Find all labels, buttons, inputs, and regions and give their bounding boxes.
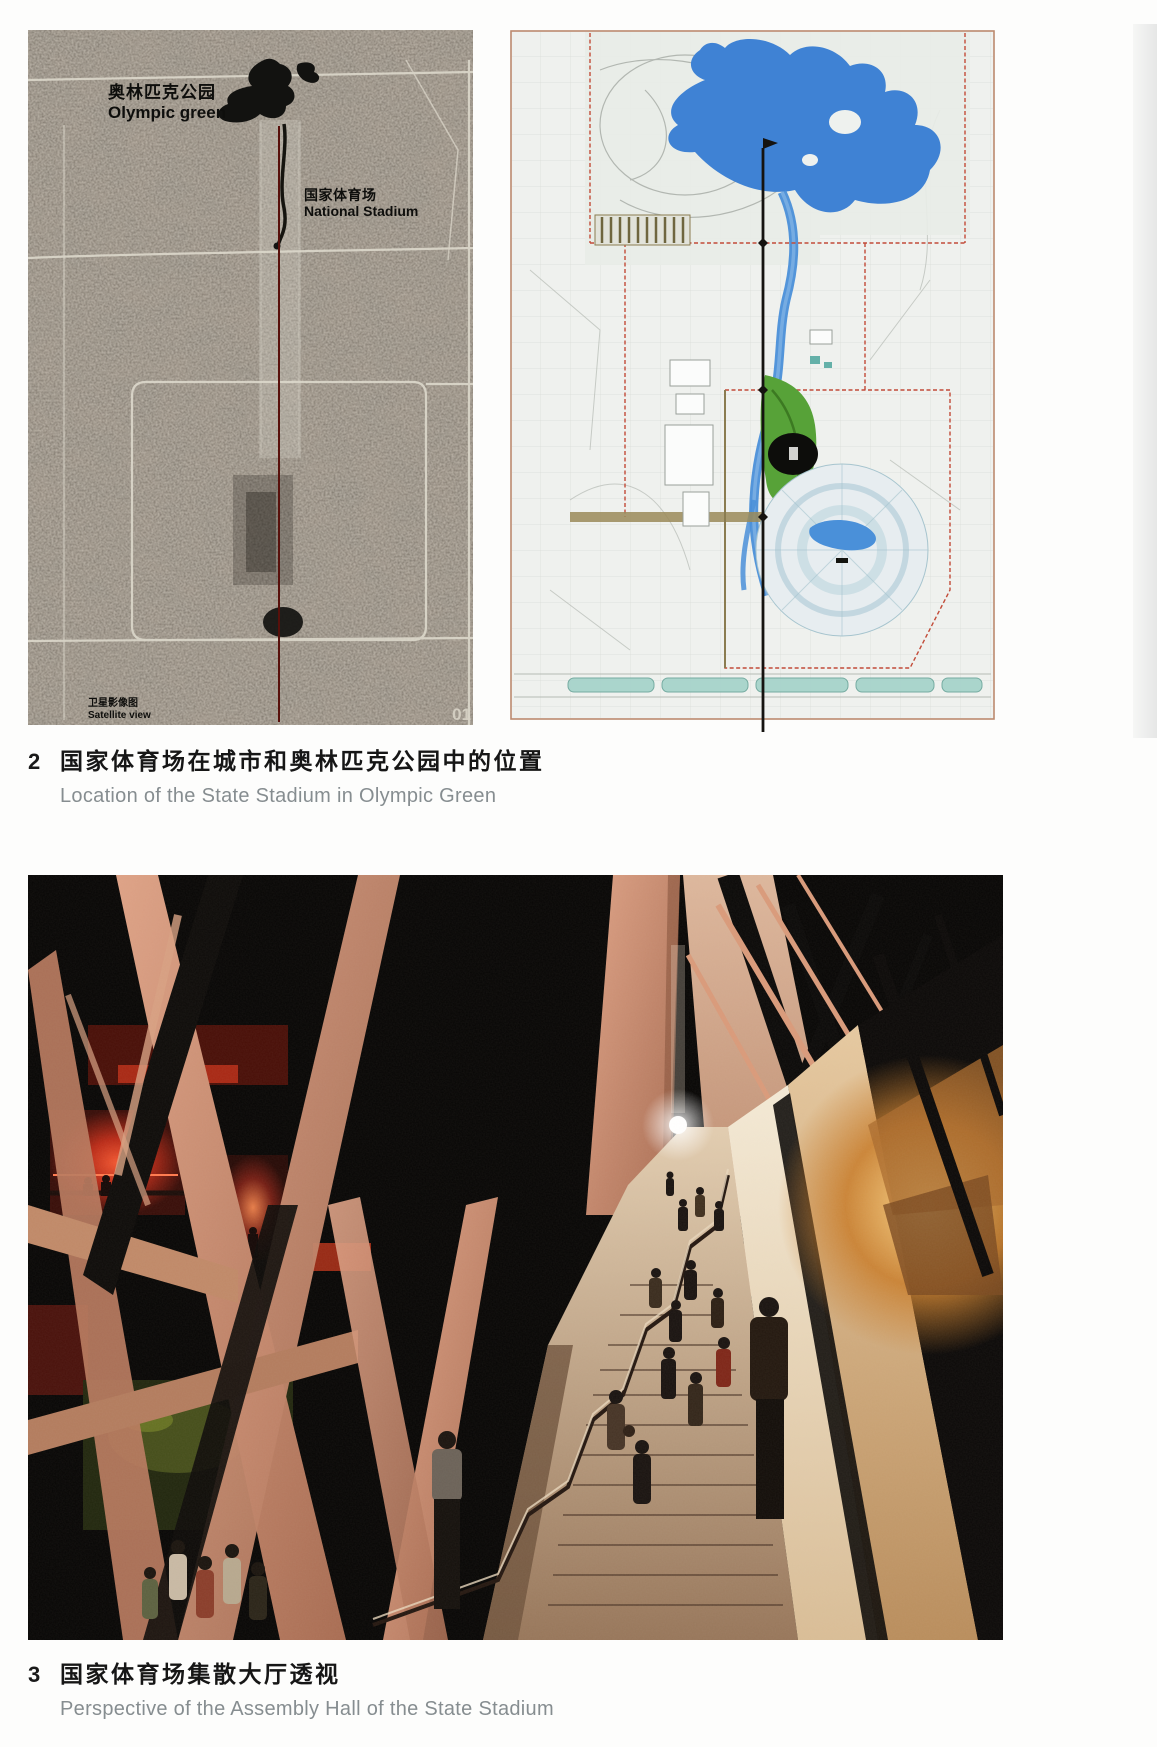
assembly-hall-rendering (28, 875, 1003, 1645)
facing-page-edge (1133, 24, 1157, 738)
figure3-number: 3 (28, 1662, 60, 1688)
national-stadium-label-zh: 国家体育场 (304, 187, 377, 203)
masterplan-map (510, 30, 995, 740)
figure3-caption-en: Perspective of the Assembly Hall of the … (60, 1698, 554, 1721)
olympic-green-label-zh: 奥林匹克公园 (108, 82, 216, 102)
satellite-warm-patches (28, 30, 473, 725)
national-stadium-label-en: National Stadium (304, 203, 418, 219)
figure3-caption: 3 国家体育场集散大厅透视 Perspective of the Assembl… (28, 1655, 554, 1721)
stadium-field (789, 447, 798, 460)
masterplan-graphic (510, 30, 995, 735)
assembly-hall-graphic (28, 875, 1003, 1640)
figure3-caption-zh: 国家体育场集散大厅透视 (60, 1655, 341, 1689)
palace-dark-core (246, 492, 276, 572)
lower-circle-precinct (756, 464, 928, 636)
print-grain (28, 875, 1003, 1640)
image-number-mark: 01 (452, 705, 471, 724)
satellite-view-graphic: 奥林匹克公园 Olympic green 国家体育场 National Stad… (28, 30, 473, 725)
lake-islet (802, 154, 818, 166)
source-label-zh: 卫星影像图 (88, 696, 138, 709)
lake-island (829, 110, 861, 134)
source-label-en: Satellite view (88, 710, 151, 721)
figure2-caption-zh: 国家体育场在城市和奥林匹克公园中的位置 (60, 742, 545, 776)
book-page: 奥林匹克公园 Olympic green 国家体育场 National Stad… (0, 0, 1157, 1747)
olympic-green-label-en: Olympic green (108, 103, 226, 122)
figure2-caption-en: Location of the State Stadium in Olympic… (60, 785, 545, 808)
figure2-number: 2 (28, 749, 60, 775)
satellite-image: 奥林匹克公园 Olympic green 国家体育场 National Stad… (28, 30, 473, 730)
figure2-caption: 2 国家体育场在城市和奥林匹克公园中的位置 Location of the St… (28, 742, 545, 808)
